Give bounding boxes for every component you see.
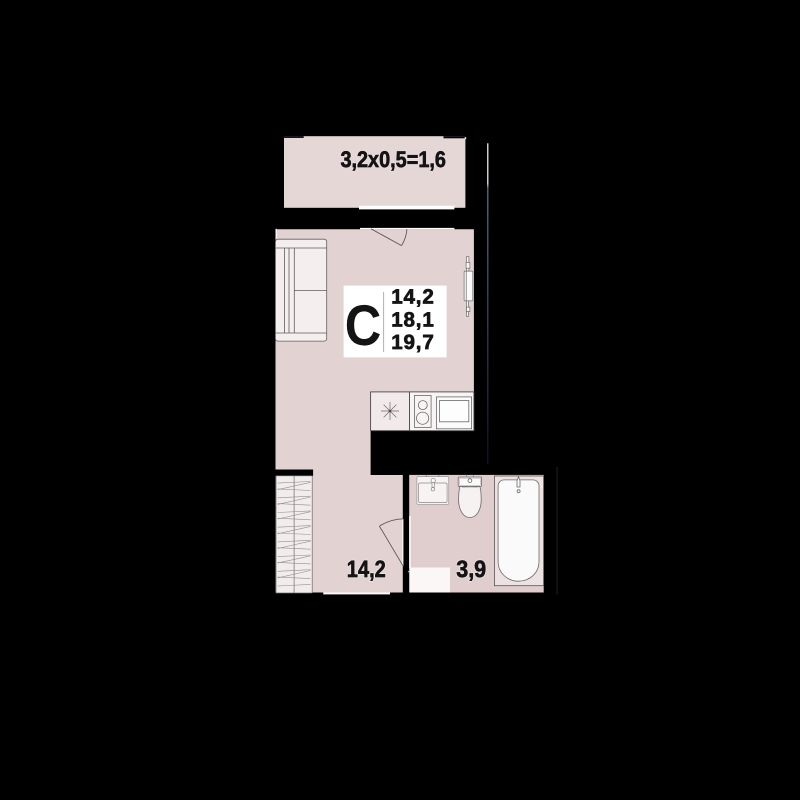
svg-text:14,2: 14,2 bbox=[391, 286, 434, 309]
svg-text:18,1: 18,1 bbox=[391, 309, 434, 332]
svg-text:3,2x0,5=1,6: 3,2x0,5=1,6 bbox=[340, 147, 446, 172]
svg-text:С: С bbox=[345, 294, 382, 358]
svg-text:3,9: 3,9 bbox=[456, 557, 486, 583]
svg-text:14,2: 14,2 bbox=[347, 557, 386, 583]
svg-text:19,7: 19,7 bbox=[391, 331, 434, 354]
